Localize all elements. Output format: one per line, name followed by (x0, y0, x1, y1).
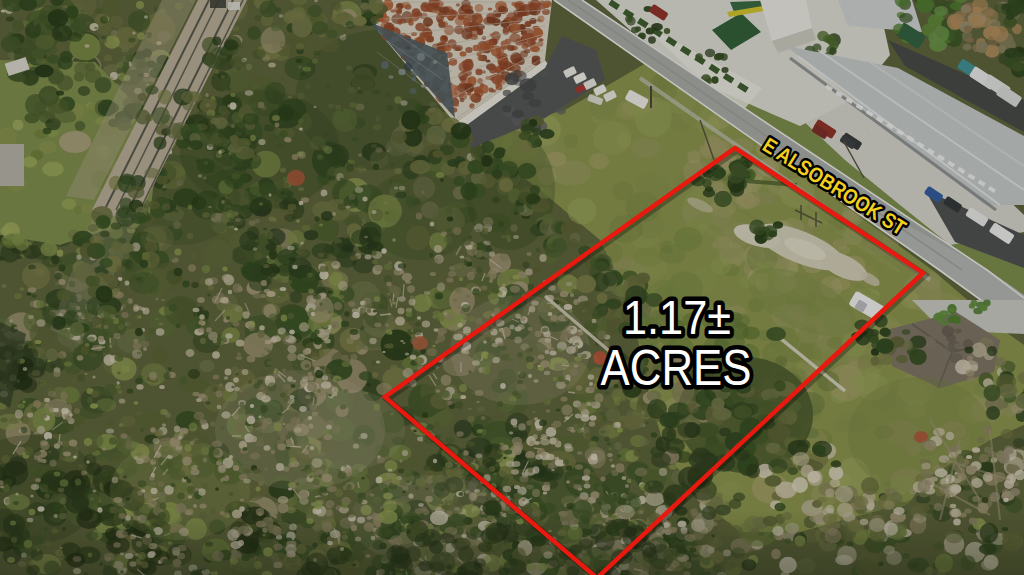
svg-text:1.17±: 1.17± (623, 291, 731, 344)
svg-text:ACRES: ACRES (601, 339, 752, 396)
